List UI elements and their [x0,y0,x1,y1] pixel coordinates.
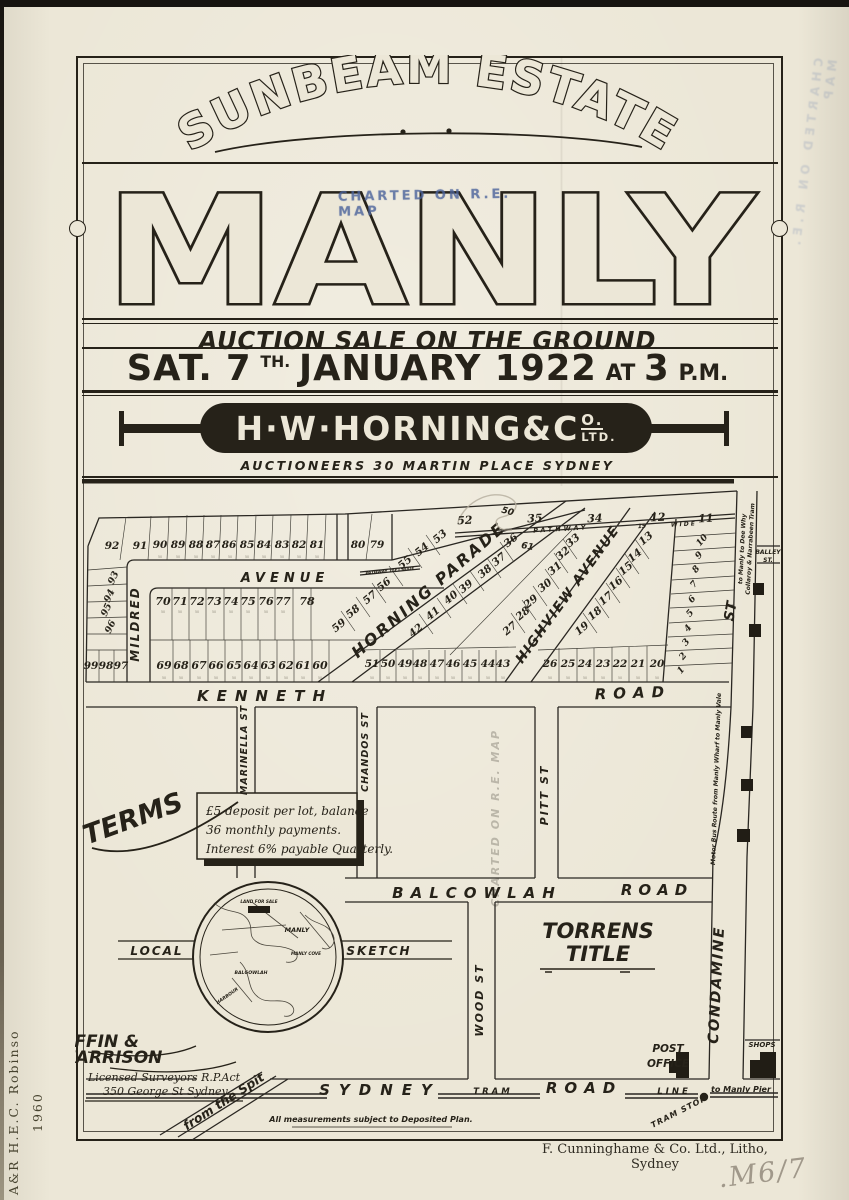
lot-number: 60 [312,659,328,672]
terms-title: TERMS [79,787,187,852]
lot-number: 5 [685,608,697,619]
surveyor-name-2: HARRISON [75,1048,162,1068]
lot-number: 9 [694,550,706,562]
lot-number: 6 [687,594,699,606]
lot-number: 95 [99,601,115,618]
street-label-balcowlah-road: ROAD [621,881,693,899]
street-label-kenneth-road: ROAD [594,683,671,704]
lot-dimension: 50 [284,676,288,680]
charted-stamp: CHARTED ON R.E. MAP [338,186,538,219]
agent-name-main: H·W·HORNING&C [236,409,580,448]
margin-accession-stamp: A&R H.E.C. Robinso [6,1000,21,1195]
lot-number: 76 [258,595,274,608]
lot-number: 96 [103,618,119,635]
lot-number: 71 [172,595,187,608]
divider-4b [82,395,778,396]
lot-dimension: 50 [194,555,198,559]
lot-number: 24 [577,658,593,670]
lot-number: 79 [370,539,385,551]
street-label-chandos: CHANDOS ST [360,712,371,792]
sketch-caption-sketch: SKETCH [346,944,411,958]
lot-number: 89 [171,539,186,551]
torrens-title-1: TORRENS [542,919,654,943]
lot-number: 74 [223,595,238,608]
lot-number: 78 [299,595,315,608]
street-label-condamine: CONDAMINE [706,925,728,1044]
shops-building [750,1052,776,1078]
lot-number: 42 [407,621,426,640]
surveyor-line-1: Licensed Surveyors R.P.Act [87,1071,241,1084]
lot-dimension: 50 [176,555,180,559]
margin-blue-smudge: CHARTED ON R.E. MAP [788,57,840,259]
sketch-label-cove: MANLY COVE [291,951,321,956]
street-label-wood: WOOD ST [473,963,486,1036]
lot-dimension: 50 [301,676,305,680]
lot-dimension: 50 [386,676,390,680]
lot-number: 87 [206,539,221,551]
lot-number: 52 [457,514,473,528]
lot-number: 99 [84,660,99,672]
lot-dimension: 50 [636,676,640,680]
building-icon [749,624,761,637]
lot-number: 21 [630,658,646,670]
street-label-sydney: SYDNEY [319,1081,441,1099]
sketch-land-marker [248,906,270,913]
date-time: 3 [644,348,670,389]
lot-number: 11 [698,512,714,526]
lot-number: 90 [153,539,168,551]
lot-dimension: 50 [228,555,232,559]
lot-number: 80 [351,539,366,551]
lot-number: 82 [292,539,307,551]
lot-dimension: 50 [162,676,166,680]
street-label-balley-2: ST. [763,557,773,564]
stamp-showthrough: CHARTED ON R.E. MAP [489,729,502,907]
street-label-sydney-road: ROAD [546,1079,622,1097]
terms-line-3: Interest 6% payable Quarterly. [205,842,393,856]
agent-banner: H·W·HORNING&C O. LTD. [200,403,652,453]
street-label-avenue: AVENUE [240,571,329,586]
lot-number: 48 [413,658,428,670]
lot-number: 91 [133,540,148,552]
pathway-width: 15 [638,523,647,530]
lot-dimension: 50 [158,555,162,559]
line-word: LINE [657,1087,691,1097]
lot-dimension: 50 [249,676,253,680]
lot-number: 83 [275,539,290,551]
lot-dimension: 50 [232,676,236,680]
bus-route-caption: Motor Bus Route from Manly Wharf to Manl… [709,693,723,866]
building-icon [737,829,750,842]
lot-number: 45 [463,658,478,670]
lot-dimension: 50 [197,676,201,680]
lot-dimension: 50 [245,555,249,559]
lot-number: 84 [257,539,272,551]
lot-number: 46 [446,658,461,670]
lot-number: 8 [691,564,703,576]
street-label-pitt: PITT ST [538,765,551,826]
lot-dimension: 50 [418,676,422,680]
lot-number: 54 [413,540,432,559]
lot-dimension: 50 [281,610,285,614]
lot-dimension: 50 [212,610,216,614]
lot-dimension: 50 [246,610,250,614]
sketch-caption-local: LOCAL [130,944,183,958]
arch-dot-left [400,129,405,134]
shops-label: SHOPS [748,1041,775,1049]
street-label-balcowlah: BALCOWLAH [392,884,562,902]
lot-number: 12 [650,511,666,525]
date-at: AT [606,361,636,386]
lot-dimension: 50 [655,676,659,680]
lot-dimension: 50 [435,676,439,680]
lot-number: 43 [496,658,511,670]
lot-dimension: 50 [262,555,266,559]
arch-dot-right [446,128,451,133]
date-day: SAT. 7 [127,348,252,389]
lot-dimension: 50 [178,610,182,614]
street-label-marinella: MARINELLA ST [239,704,250,795]
arch-swash [215,133,642,152]
divider-4a [82,390,778,393]
lot-number: 69 [156,659,172,672]
lot-number: 7 [689,579,701,591]
poster-sheet: SUNBEAM ESTATE MANLY CHARTED ON R.E. MAP… [0,0,849,1200]
tram-word: TRAM [473,1087,512,1097]
tram-stop-label: TRAM STOP [649,1094,708,1130]
agent-name: H·W·HORNING&C O. LTD. [236,409,617,448]
lot-dimension: 50 [486,676,490,680]
lot-number: 26 [542,658,558,670]
lot-dimension: 50 [601,676,605,680]
surveyor-line-2: 350 George St Sydney. [103,1085,230,1098]
terms-panel: £5 deposit per lot, balance 36 monthly p… [79,787,393,866]
lot-dimension: 50 [315,555,319,559]
lot-dimension: 50 [583,676,587,680]
lot-dimension: 50 [403,676,407,680]
lot-number: 81 [310,539,325,551]
lot-number: 97 [114,660,129,672]
lot-number: 49 [398,658,413,670]
local-sketch-inset: LAND FOR SALE MANLY MANLY COVE BALGOWLAH… [118,882,452,1032]
scan-edge-top [0,0,849,7]
banner-cap-right [724,411,729,446]
torrens-underline [540,969,655,972]
lot-number: 66 [208,659,224,672]
lot-number: 25 [560,658,576,670]
lot-number: 34 [587,512,603,526]
lot-number: 41 [424,604,443,623]
street-label-mildred: MILDRED [128,586,142,661]
terms-line-2: 36 monthly payments. [206,823,341,837]
agent-name-co: O. LTD. [581,413,616,443]
pencil-mark-2: 61 [520,541,534,553]
agent-ltd: LTD. [581,431,616,443]
sketch-label-land: LAND FOR SALE [240,899,277,904]
auction-date: SAT. 7TH. JANUARY 1922 AT 3 P.M. [87,348,768,389]
lot-dimension: 50 [195,610,199,614]
measurements-note: All measurements subject to Deposited Pl… [268,1115,472,1124]
scan-edge-left [0,0,4,1200]
building-icon [741,779,753,791]
date-ordinal: TH. [260,352,290,371]
lot-dimension: 50 [229,610,233,614]
lot-dimension: 50 [211,555,215,559]
margin-year-stamp: 1960 [30,1072,45,1132]
post-office-label-1: POST [652,1043,684,1055]
lot-dimension: 50 [318,676,322,680]
lot-dimension: 50 [548,676,552,680]
lot-number: 2 [677,651,689,663]
banner-wing-right [650,424,724,433]
to-manly-pier-label: to Manly Pier [711,1085,772,1094]
divider-2a [82,318,778,320]
lot-number: 20 [649,658,665,670]
lot-dimension: 50 [264,610,268,614]
divider-2b [82,323,778,324]
lot-dimension: 50 [179,676,183,680]
lot-dimension: 50 [618,676,622,680]
lot-dimension: 50 [566,676,570,680]
date-month-year: JANUARY 1922 [299,348,597,389]
lot-number: 47 [430,658,445,670]
street-label-st-upper: ST [721,599,740,623]
lot-number: 58 [344,602,363,621]
map-top-bar [82,479,734,484]
lot-number: 93 [106,569,122,586]
lot-number: 61 [295,659,310,672]
banner-cap-left [119,411,124,446]
lot-number: 77 [275,595,291,608]
lot-dimension: 50 [280,555,284,559]
lot-number: 63 [260,659,276,672]
lot-number: 85 [240,539,255,551]
sketch-label-manly: MANLY [285,926,311,934]
lot-number: 72 [189,595,205,608]
lot-number: 70 [155,595,171,608]
lot-number: 88 [189,539,204,551]
street-label-kenneth: KENNETH [197,687,333,705]
agent-tagline: AUCTIONEERS 30 MARTIN PLACE SYDNEY [80,458,775,473]
lot-number: 44 [481,658,496,670]
lot-number: 75 [240,595,255,608]
lot-number: 50 [381,658,396,670]
lot-number: 98 [99,660,114,672]
lot-number: 22 [612,658,628,670]
pathway-wide: WIDE [671,520,697,529]
lot-number: 23 [595,658,611,670]
lot-dimension: 50 [370,676,374,680]
lot-dimension: 50 [501,676,505,680]
lot-number: 86 [222,539,237,551]
place-title-graphic: MANLY [75,163,785,323]
building-icon [741,726,752,738]
lot-dimension: 50 [161,610,165,614]
lot-number: 51 [365,658,380,670]
street-label-balley-1: BALLEY [755,549,781,556]
lot-number: 3 [681,637,693,648]
lot-number: 35 [527,512,543,526]
lot-number: 64 [243,659,258,672]
post-office-label-2: OFFICE [647,1058,690,1070]
lot-number: 1 [676,665,688,676]
lot-number: 4 [683,623,695,634]
torrens-title-2: TITLE [566,942,631,966]
lot-dimension: 50 [468,676,472,680]
lot-number: 73 [206,595,222,608]
banner-wing-left [124,424,202,433]
terms-line-1: £5 deposit per lot, balance [205,804,369,818]
lot-number: 92 [105,540,120,552]
lot-number: 65 [226,659,241,672]
sketch-label-balgowlah: BALGOWLAH [234,970,267,976]
pathway-label: PATHWAY [533,523,589,534]
building-icon [753,583,764,595]
lot-dimension: 50 [297,555,301,559]
date-pm: P.M. [679,361,729,386]
lot-number: 53 [431,527,450,546]
lot-number: 68 [173,659,189,672]
lot-number: 67 [191,659,207,672]
agent-co-sup: O. [581,413,603,430]
lot-number: 62 [278,659,294,672]
lot-dimension: 50 [266,676,270,680]
lot-dimension: 50 [214,676,218,680]
subdivision-map: £5 deposit per lot, balance 36 monthly p… [75,478,785,1150]
lot-dimension: 50 [451,676,455,680]
